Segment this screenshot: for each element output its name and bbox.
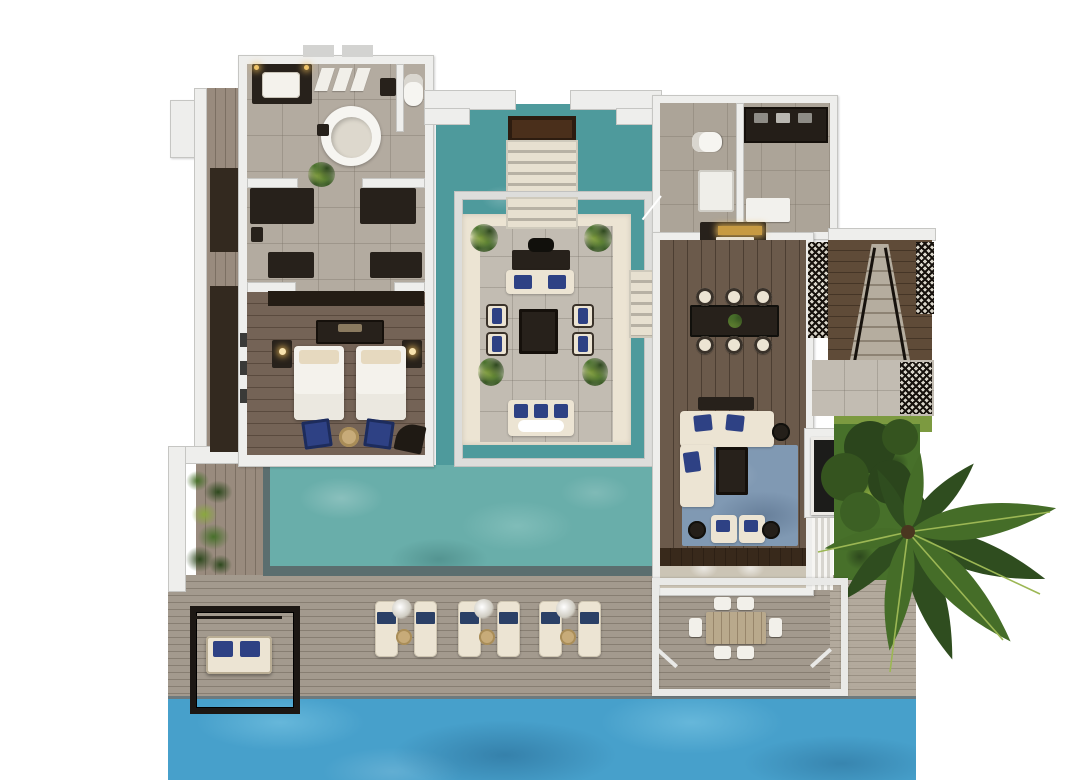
pavilion-plant <box>582 358 608 386</box>
bar-light-strip <box>718 226 762 235</box>
ottoman-pillow <box>716 520 730 532</box>
bedroom-armchair <box>363 418 395 450</box>
desk-chair <box>528 238 554 252</box>
roof-tab <box>303 45 334 57</box>
guest-toilet <box>692 132 722 152</box>
table-centerpiece-plant <box>728 314 742 328</box>
swing-crossbar <box>196 616 282 619</box>
pantry-appliance <box>798 113 812 123</box>
media-console <box>698 397 754 410</box>
vanity-light <box>304 65 309 70</box>
daybed-pillow <box>514 404 528 418</box>
armchair-cushion <box>492 336 502 352</box>
pool-edge-south <box>263 566 654 576</box>
window-slit <box>240 361 247 375</box>
vanity-light <box>254 65 259 70</box>
parapet-wall <box>424 108 470 125</box>
console-decor <box>338 324 362 332</box>
wall-segment <box>736 103 744 225</box>
west-shrubs <box>186 464 232 576</box>
parapet-wall <box>570 90 662 110</box>
lattice-screen <box>808 242 830 338</box>
swing-pillow <box>240 641 260 657</box>
lattice-railing <box>916 242 934 314</box>
bench-cushion <box>548 275 566 289</box>
deck-plant <box>556 599 576 619</box>
privacy-screen <box>210 168 239 252</box>
bedroom-armchair <box>301 418 333 450</box>
outdoor-chair <box>689 618 702 637</box>
wardrobe <box>370 252 422 278</box>
window-slit <box>240 333 247 347</box>
wall-segment <box>168 446 186 592</box>
round-ottoman <box>339 427 359 447</box>
daybed-pillow <box>554 404 568 418</box>
wall-segment <box>194 88 207 458</box>
ottoman-pillow <box>744 520 758 532</box>
dining-chair <box>696 288 714 306</box>
wall-hooks <box>251 227 263 242</box>
sun-lounger <box>497 601 520 657</box>
shower-partition-wall <box>396 64 404 132</box>
pavilion-plant <box>478 358 504 386</box>
bed-pillow <box>361 350 401 364</box>
pavilion-entry-steps <box>508 199 576 227</box>
bathtub-basin <box>331 117 372 158</box>
entry-lintel <box>508 116 576 142</box>
main-pool-water <box>263 465 654 576</box>
outdoor-chair <box>737 597 754 610</box>
drink-table <box>560 629 576 645</box>
wardrobe <box>268 252 314 278</box>
guest-vanity <box>698 170 734 212</box>
deck-plant <box>392 599 412 619</box>
daybed-bolster <box>518 420 564 432</box>
sofa-pillow <box>693 414 713 432</box>
wall-segment <box>247 178 298 188</box>
wall-segment <box>362 178 425 188</box>
outdoor-chair <box>769 618 782 637</box>
pantry-appliance <box>776 113 790 123</box>
dining-chair <box>725 336 743 354</box>
dining-chair <box>754 336 772 354</box>
sun-lounger <box>414 601 437 657</box>
bench-cushion <box>514 275 532 289</box>
pantry-bench <box>746 198 790 222</box>
bedside-lamp <box>409 348 416 355</box>
window-slit <box>240 389 247 403</box>
pantry-appliance <box>754 113 768 123</box>
outdoor-chair <box>714 646 731 659</box>
pavilion-plant <box>584 224 612 252</box>
daybed-pillow <box>534 404 548 418</box>
dining-chair <box>725 288 743 306</box>
pavilion-coffee-table <box>519 309 558 354</box>
dining-chair <box>754 288 772 306</box>
wardrobe <box>360 188 416 224</box>
bedside-lamp <box>279 348 286 355</box>
roof-tab <box>342 45 373 57</box>
east-walkway-steps <box>631 272 654 336</box>
outdoor-chair <box>714 597 731 610</box>
sun-lounger <box>578 601 601 657</box>
living-coffee-table <box>716 447 748 495</box>
pavilion-plant <box>470 224 498 252</box>
privacy-screen <box>210 286 239 452</box>
bath-tray <box>317 124 329 136</box>
outdoor-dining-table <box>706 612 766 644</box>
deck-plant <box>474 599 494 619</box>
vanity-basin <box>262 72 300 98</box>
floor-plan-render <box>0 0 1080 780</box>
parapet-wall <box>424 90 516 110</box>
bath-cabinet <box>380 78 396 96</box>
drink-table <box>396 629 412 645</box>
armchair-cushion <box>578 336 588 352</box>
outdoor-chair <box>737 646 754 659</box>
pouf <box>688 521 706 539</box>
sofa-pillow <box>683 451 702 473</box>
swing-pillow <box>213 641 233 657</box>
dining-chair <box>696 336 714 354</box>
wardrobe <box>250 188 314 224</box>
toilet <box>404 74 423 106</box>
drink-table <box>479 629 495 645</box>
armchair-cushion <box>492 308 502 324</box>
sofa-pillow <box>725 414 745 432</box>
headboard-wall-panel <box>268 291 424 306</box>
bathroom-plant <box>308 162 335 187</box>
armchair-cushion <box>578 308 588 324</box>
bed-pillow <box>299 350 339 364</box>
pool-edge-west <box>263 465 270 576</box>
pavilion-desk <box>512 250 570 270</box>
